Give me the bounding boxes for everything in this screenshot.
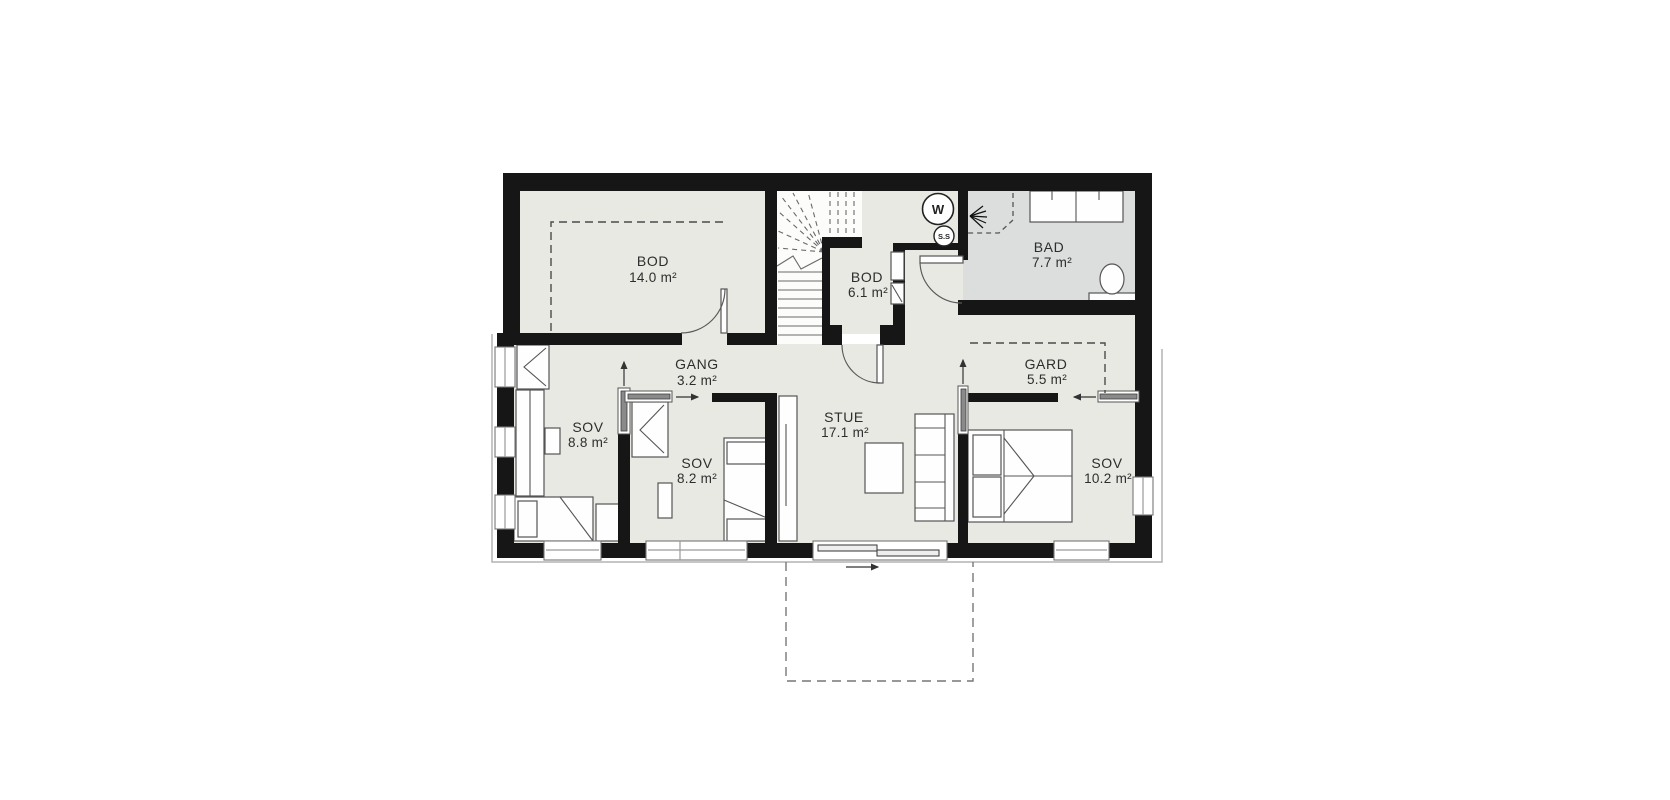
room-label-bad: BAD	[1034, 239, 1065, 255]
pocket-door-panel	[1100, 394, 1137, 399]
room-label-sov102: SOV	[1091, 455, 1122, 471]
tall-cabinet	[779, 396, 797, 541]
room-label-sov88: SOV	[572, 419, 603, 435]
pocket-door-panel	[961, 389, 966, 431]
room-area-gard: 5.5 m²	[1027, 372, 1067, 387]
room-label-bod14: BOD	[637, 253, 669, 269]
stairwell-upper-floor	[822, 191, 862, 237]
coffee-table	[865, 443, 903, 493]
door-leaf	[920, 256, 963, 263]
shelf	[658, 483, 672, 518]
room-label-bod61: BOD	[851, 269, 883, 285]
room-area-bod14: 14.0 m²	[629, 270, 677, 285]
bed-foot-box	[727, 519, 770, 541]
room-label-sov82: SOV	[681, 455, 712, 471]
room-area-bod61: 6.1 m²	[848, 285, 888, 300]
room-area-stue: 17.1 m²	[821, 425, 869, 440]
room-area-gang: 3.2 m²	[677, 373, 717, 388]
sofa	[915, 414, 954, 521]
water-heater-label: W	[932, 202, 945, 217]
ss-label: S.S	[938, 232, 950, 241]
door-leaf	[877, 345, 883, 383]
pillow	[973, 435, 1001, 475]
sliding-glass-door	[813, 541, 947, 567]
door-threshold	[842, 334, 880, 344]
room-area-bad: 7.7 m²	[1032, 255, 1072, 270]
pocket-door-panel	[628, 394, 670, 399]
toilet-bowl	[1100, 264, 1124, 294]
pillow	[973, 477, 1001, 517]
room-label-gang: GANG	[675, 356, 719, 372]
terrace-dashed-outline	[786, 562, 973, 681]
floor-plan-drawing: W S.S BOD 14.0 m² GANG 3.2 m² BOD 6.1 m²…	[0, 0, 1670, 800]
floor-plan-canvas: W S.S BOD 14.0 m² GANG 3.2 m² BOD 6.1 m²…	[0, 0, 1670, 800]
wardrobe	[517, 345, 549, 389]
pillow	[727, 442, 769, 464]
room-area-sov102: 10.2 m²	[1084, 471, 1132, 486]
pillow	[518, 501, 537, 537]
room-area-sov82: 8.2 m²	[677, 471, 717, 486]
room-label-gard: GARD	[1025, 356, 1068, 372]
wardrobe	[632, 402, 668, 457]
shelf	[545, 428, 560, 454]
room-area-sov88: 8.8 m²	[568, 435, 608, 450]
nightstand	[596, 504, 619, 541]
duct-panel	[891, 252, 904, 280]
room-label-stue: STUE	[824, 409, 864, 425]
